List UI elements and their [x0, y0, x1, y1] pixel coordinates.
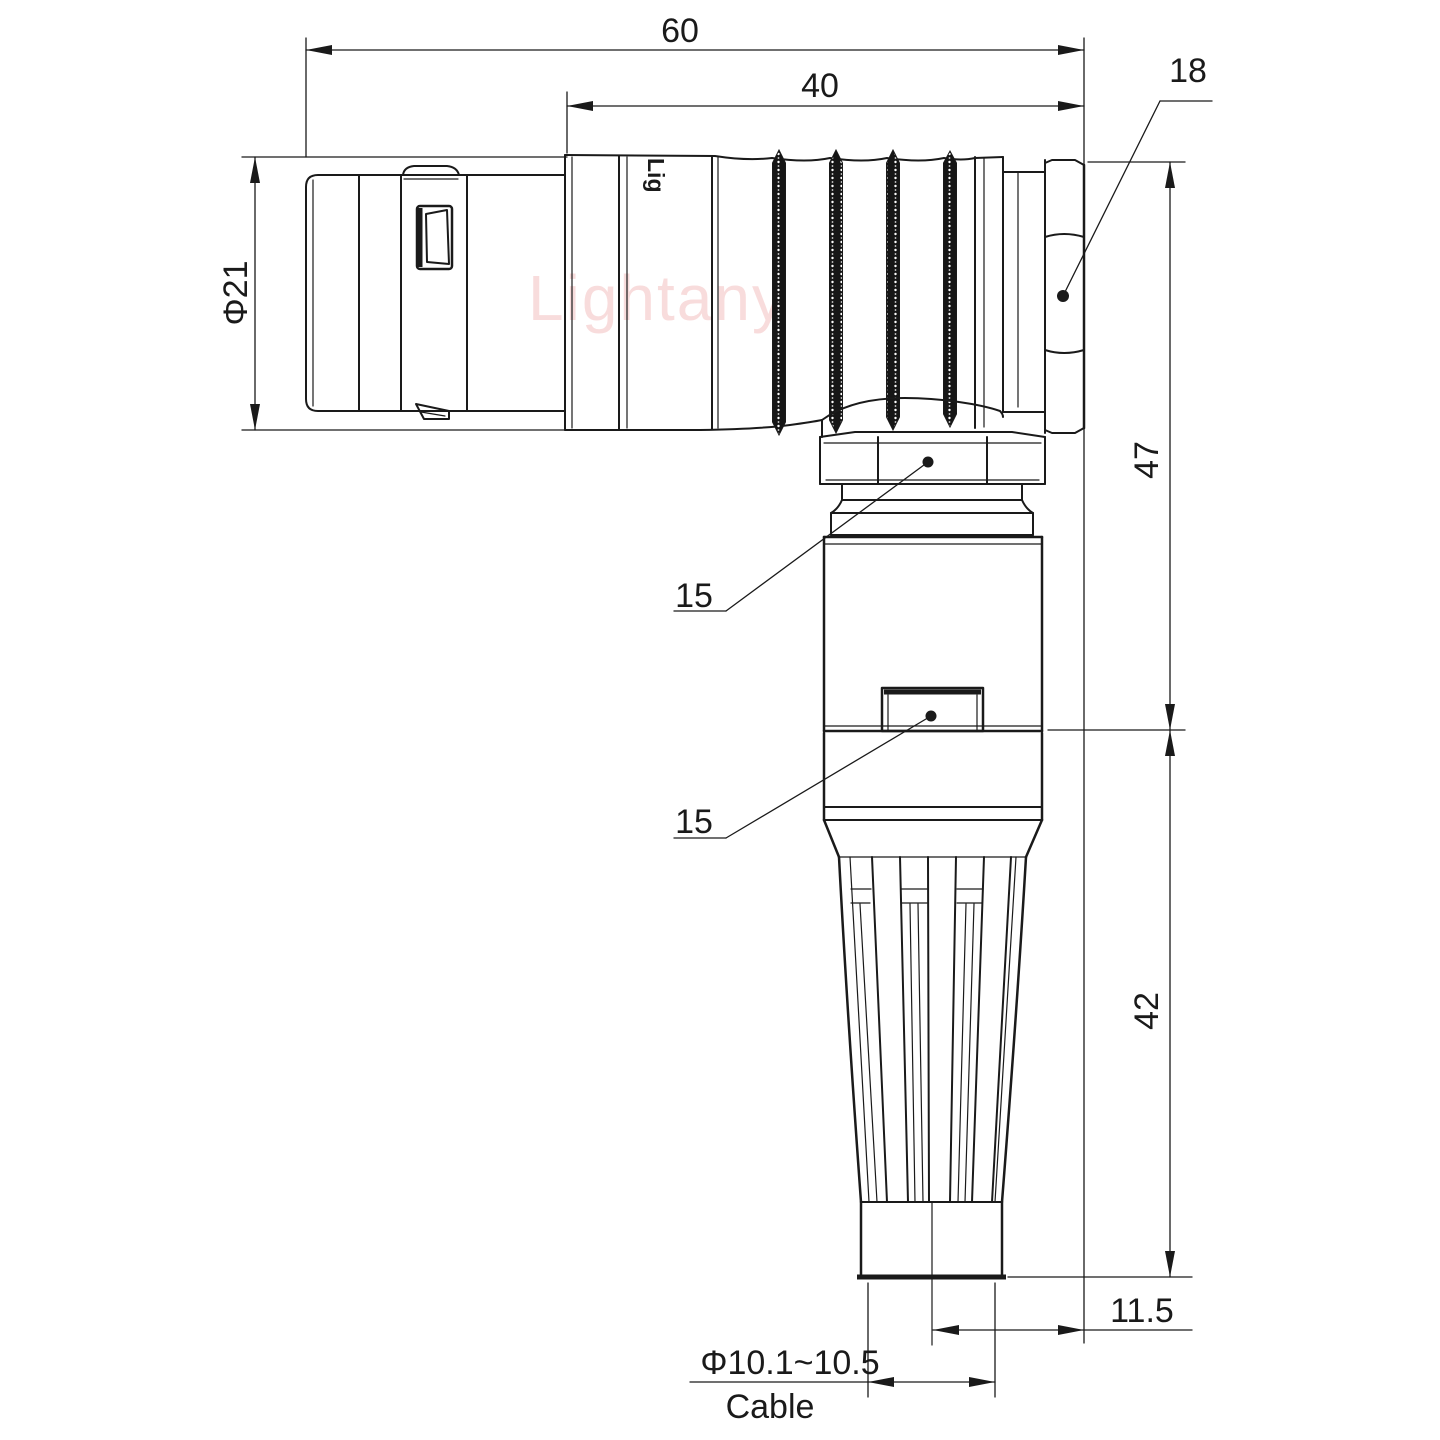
coupling-nut — [820, 432, 1045, 484]
dim-11-5-text: 11.5 — [1110, 1292, 1174, 1330]
rear-neck — [1003, 157, 1045, 412]
flare-band — [831, 500, 1033, 535]
leader-15a-text: 15 — [675, 577, 713, 615]
dimension-40: 40 — [567, 67, 1084, 111]
dim-60-text: 60 — [661, 12, 699, 50]
knurl-strip — [830, 150, 843, 433]
leader-18-text: 18 — [1169, 52, 1207, 90]
dimension-47: 47 — [1128, 162, 1175, 730]
shell-key-bump — [403, 166, 459, 175]
strain-relief-ribs — [850, 857, 1016, 1202]
watermark-text: Lightany — [528, 262, 786, 334]
strain-relief-flute-back-lines — [860, 904, 974, 1202]
dim-21-text: Φ21 — [217, 261, 255, 326]
dim-42-text: 42 — [1128, 992, 1166, 1030]
dimension-annotations: 60 40 Φ21 18 47 — [217, 12, 1212, 1426]
body-window — [882, 688, 983, 731]
leader-18: 18 — [1057, 52, 1212, 302]
dim-cable-diameter-text: Φ10.1~10.5 — [700, 1344, 879, 1382]
cable-boot — [857, 1202, 1006, 1345]
dim-40-text: 40 — [801, 67, 839, 105]
dimension-cable: Φ10.1~10.5 Cable — [690, 1344, 995, 1426]
dimension-60: 60 — [306, 12, 1084, 55]
dimension-11-5: 11.5 — [933, 1292, 1192, 1335]
strain-relief — [839, 857, 1026, 1345]
dimension-diameter-21: Φ21 — [217, 157, 260, 430]
dim-47-text: 47 — [1128, 441, 1166, 479]
technical-drawing-canvas: Lightany Lig — [0, 0, 1440, 1440]
gland-section — [824, 733, 1042, 857]
knurl-strip — [887, 150, 900, 430]
knurl-strips — [773, 150, 957, 435]
leader-15b-dot — [926, 711, 937, 722]
leader-18-dot — [1057, 290, 1069, 302]
main-body — [824, 537, 1042, 731]
leader-15a-dot — [923, 457, 934, 468]
brand-mark-text: Lig — [643, 158, 669, 193]
knurl-strip — [944, 151, 957, 427]
neck-ring — [842, 484, 1022, 500]
drawing-page: Lightany Lig — [0, 0, 1440, 1440]
elbow-body — [820, 432, 1045, 857]
strain-relief-slot-bars — [851, 889, 983, 903]
strain-relief-left-edge — [839, 857, 861, 1202]
leader-15b-text: 15 — [675, 803, 713, 841]
knurl-strip — [773, 150, 786, 435]
shell-latch-wedge-line — [421, 412, 445, 416]
front-shell-outline — [306, 175, 565, 411]
dimension-42: 42 — [1128, 730, 1175, 1277]
cable-label-text: Cable — [726, 1388, 815, 1426]
shell-window — [417, 206, 452, 269]
